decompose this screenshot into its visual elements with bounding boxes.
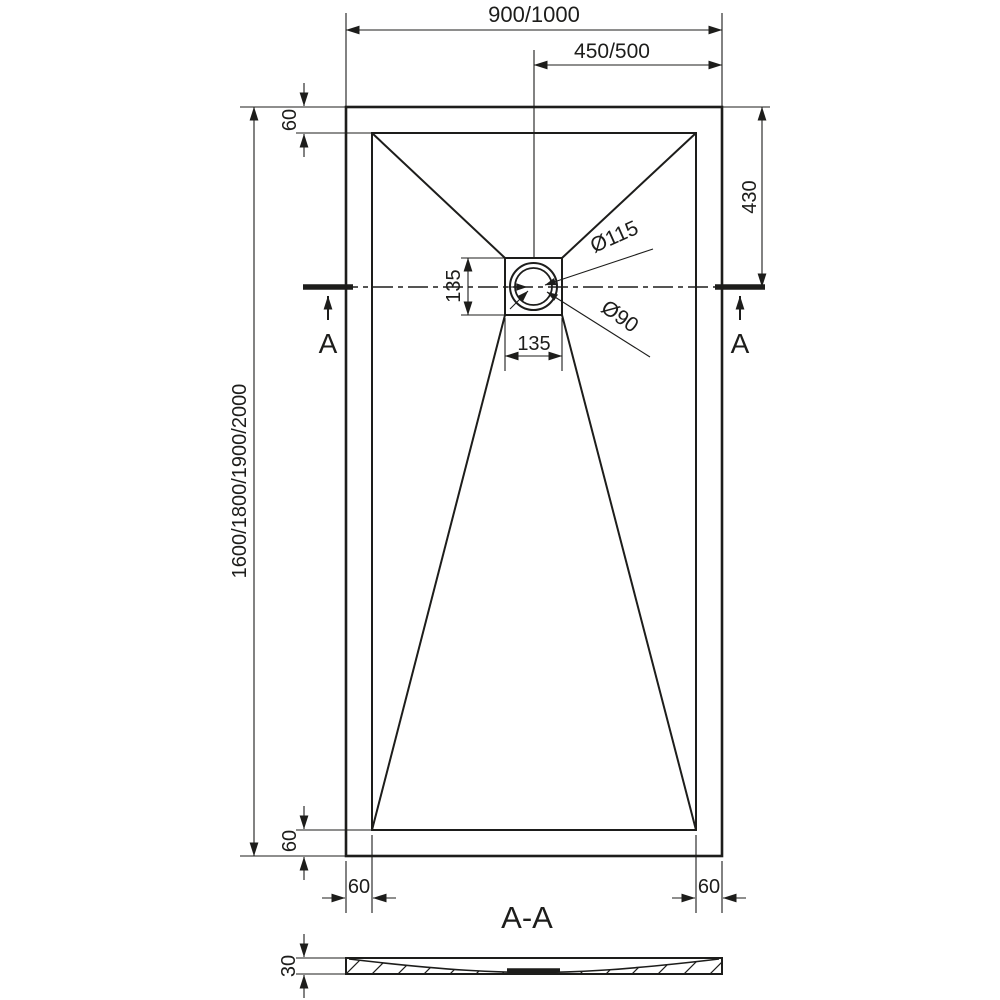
section-title: A-A: [501, 900, 553, 935]
section-marker-right: A: [731, 328, 750, 359]
label-drain-box-width: 135: [517, 333, 550, 355]
extension-lines: [240, 13, 770, 913]
label-left-border: 60: [348, 876, 370, 898]
label-overall-width: 900/1000: [488, 2, 580, 27]
label-flange-diameter: Ø115: [587, 216, 642, 257]
label-half-width: 450/500: [574, 40, 650, 63]
slope-line-bottom-left: [372, 315, 505, 830]
plan-view: 900/1000 450/500 60 430 1600/1800/1900/2…: [229, 2, 770, 913]
technical-drawing-canvas: 900/1000 450/500 60 430 1600/1800/1900/2…: [0, 0, 1000, 1000]
shower-tray-drawing: 900/1000 450/500 60 430 1600/1800/1900/2…: [0, 0, 1000, 1000]
section-view: A-A 30: [278, 900, 722, 998]
outside-arrows: [304, 83, 746, 898]
section-marker-left: A: [319, 328, 338, 359]
slope-line-top-left: [372, 133, 505, 258]
drain-slope-arrow: [510, 291, 528, 309]
dimension-lines: [254, 30, 762, 856]
label-right-border: 60: [698, 876, 720, 898]
label-drain-diameter: Ø90: [597, 296, 643, 338]
label-bottom-border: 60: [279, 830, 301, 852]
label-drain-box-height: 135: [443, 269, 465, 302]
label-overall-length: 1600/1800/1900/2000: [229, 384, 251, 579]
label-drain-offset: 430: [739, 180, 761, 213]
slope-line-bottom-right: [562, 315, 696, 830]
label-thickness: 30: [278, 955, 300, 977]
label-top-border: 60: [279, 109, 301, 131]
